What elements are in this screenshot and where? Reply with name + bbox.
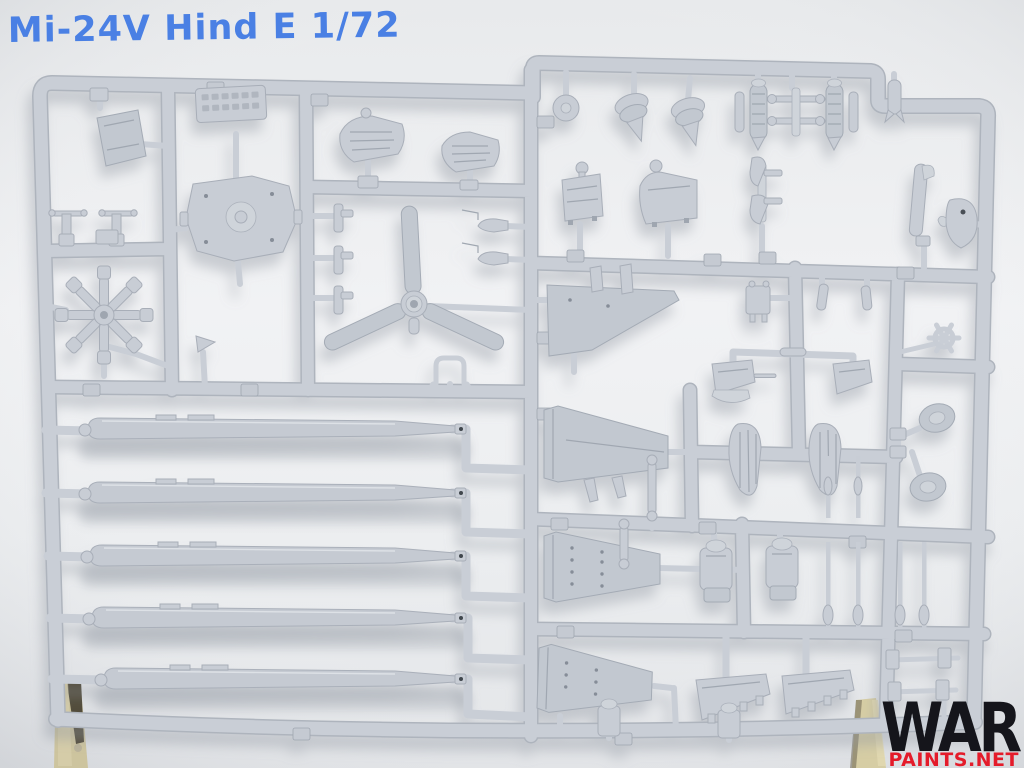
part-seat-left <box>700 540 732 602</box>
photo-canvas: Mi-24V Hind E 1/72 WAR PAINTS.NET <box>0 0 1024 768</box>
part-main-rotor-head <box>55 266 153 364</box>
part-seat-right <box>766 538 798 600</box>
watermark: WAR PAINTS.NET <box>881 688 1021 768</box>
part-torsion-bar <box>780 348 806 356</box>
part-cockpit-bulkhead <box>180 176 302 261</box>
watermark-paintsnet: PAINTS.NET <box>888 749 1019 768</box>
sprue-photo: Mi-24V Hind E 1/72 WAR PAINTS.NET <box>0 0 1024 768</box>
part-small-blade-b <box>861 286 872 311</box>
handwritten-title: Mi-24V Hind E 1/72 <box>8 6 401 51</box>
part-instrument-panel <box>195 85 267 123</box>
part-rotor-disc <box>553 95 579 121</box>
